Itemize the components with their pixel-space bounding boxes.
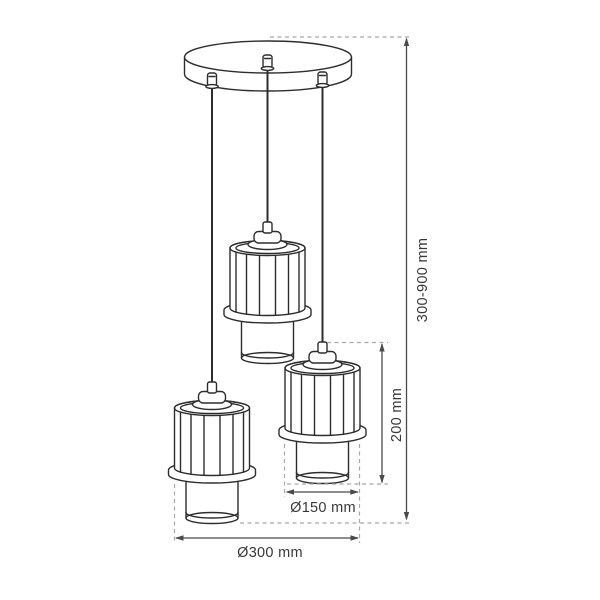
arrow-down-icon <box>404 512 409 521</box>
arrow-up-icon <box>379 343 384 352</box>
cord-grip-left <box>206 73 218 88</box>
arrow-left-icon <box>286 489 295 494</box>
arrow-up-icon <box>404 38 409 47</box>
fixture-diameter-label: Ø300 mm <box>237 545 303 561</box>
pendant-shade-center <box>224 222 311 364</box>
pendant-shade-left <box>169 382 256 524</box>
arrow-down-icon <box>379 475 384 484</box>
drop-height-label: 300-900 mm <box>415 238 431 322</box>
shade-diameter-label: Ø150 mm <box>290 500 356 516</box>
shade-height-label: 200 mm <box>389 388 405 442</box>
pendant-lamp-dimension-diagram: 300-900 mm 200 mm Ø150 mm Ø300 mm <box>0 0 600 600</box>
diagram-drawing: 300-900 mm 200 mm Ø150 mm Ø300 mm <box>0 0 600 600</box>
arrow-left-icon <box>175 535 184 540</box>
cord-grip-center <box>261 55 273 70</box>
cord-grip-right <box>316 72 328 87</box>
arrow-right-icon <box>351 535 360 540</box>
pendant-shade-right <box>279 342 366 484</box>
arrow-right-icon <box>350 489 359 494</box>
